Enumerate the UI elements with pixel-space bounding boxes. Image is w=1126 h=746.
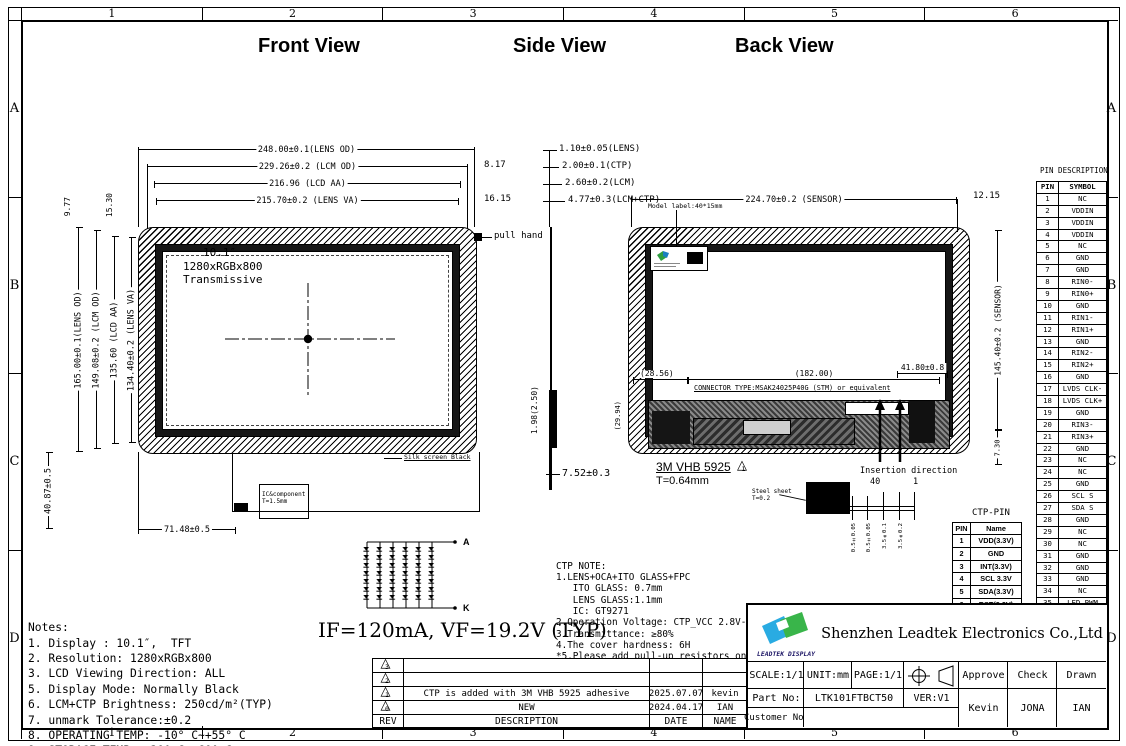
dim-front-lcm-od-width: 229.26±0.2 (LCM OD) [147, 166, 468, 167]
first-angle-projection-icon [906, 664, 958, 688]
ic-component-box: IC&component T=1.5mm [259, 484, 309, 519]
insertion-direction-label: Insertion direction [860, 467, 957, 476]
fpc-tick [899, 492, 900, 520]
drawing-sheet: 123456 123456 ABCD ABCD Front View Side … [0, 0, 1126, 746]
scale-cell: SCALE:1/1 [746, 661, 805, 689]
leader-line [549, 150, 550, 227]
dim-front-lens-od-height: 165.00±0.1(LENS OD) [78, 227, 79, 452]
side-view-title: Side View [513, 35, 606, 58]
led-cathode-label: K [463, 603, 470, 613]
check-name-cell: JONA [1007, 688, 1057, 727]
dim-side-lcm-ctp: 4.77±0.3(LCM+CTP) [568, 196, 660, 205]
fpc-dimension-labels: 0.5±0.050.5±0.053.5±0.13.5±0.2 [852, 522, 922, 556]
leadtek-logo-icon: LEADTEK DISPLAY [756, 609, 818, 661]
drawn-label-cell: Drawn [1056, 661, 1106, 689]
dim-pcb-height: (29.94) [615, 400, 622, 432]
pin-table-row: 28 GND [1037, 514, 1106, 526]
ruler-cell: 5 [744, 7, 925, 20]
dim-side-ctp: 2.00±0.1(CTP) [562, 162, 632, 171]
model-label-callout: Model label:40*15mm [648, 203, 722, 210]
pin-table-row: 25 GND [1037, 478, 1106, 490]
column-ruler-top: 123456 [21, 7, 1105, 20]
fpc-dim-label: 3.5±0.2 [899, 522, 905, 550]
revision-name [703, 673, 747, 686]
part-no-label-cell: Part No: [746, 688, 805, 708]
version-cell: VER:V1 [903, 688, 959, 708]
revision-date [650, 673, 703, 686]
model-label-box [650, 246, 708, 271]
ruler-cell: 6 [924, 7, 1105, 20]
insertion-pin-1: 1 [913, 478, 918, 487]
extension-line [467, 166, 468, 229]
note-line: 3. LCD Viewing Direction: ALL [28, 666, 368, 681]
fpc-dim-label: 0.5±0.05 [867, 522, 873, 553]
ctp-note-line: ITO GLASS: 0.7mm [556, 583, 774, 594]
pin-table-row: 6 GND [1037, 252, 1106, 264]
dim-front-lens-va-height: 134.40±0.2 (LENS VA) [131, 237, 132, 443]
crosshair-icon [220, 268, 400, 408]
pin-table-row: 20 RIN3- [1037, 419, 1106, 431]
dim-front-right-offset-1: 8.17 [484, 161, 506, 170]
ruler-cell: 2 [202, 7, 383, 20]
pin-table-row: 26 SCL S [1037, 490, 1106, 502]
pin-table-row: 33 GND [1037, 573, 1106, 585]
check-label-cell: Check [1007, 661, 1057, 689]
barcode-icon [687, 252, 703, 264]
ctp-table-row: 4 SCL 3.3V [953, 572, 1021, 585]
led-array-diagram [355, 532, 467, 616]
ruler-cell: B [8, 197, 21, 374]
pcb-left-block [652, 411, 690, 444]
pin-table-row: 10 GND [1037, 300, 1106, 312]
pin-table-row: 16 GND [1037, 371, 1106, 383]
insertion-arrows-icon [872, 398, 916, 464]
pin-table-row: 22 GND [1037, 443, 1106, 455]
fpc-tick [883, 492, 884, 520]
pin-table-header: PIN SYMBOL [1037, 182, 1106, 193]
ctp-note-line: IC: GT9271 [556, 606, 774, 617]
projection-symbol-cell [903, 661, 959, 689]
pin-table-body: 1 NC 2 VDDIN 3 VDDIN 4 VDDIN [1037, 193, 1106, 669]
dim-front-lens-va-width: 215.70±0.2 (LENS VA) [156, 200, 459, 201]
fpc-tail-line [850, 506, 914, 507]
dim-pcb-left-line [633, 379, 688, 380]
pin-table-row: 8 RIN0- [1037, 276, 1106, 288]
led-anode-label: A [463, 537, 470, 547]
pull-hand-label: pull hand [494, 232, 543, 241]
page-cell: PAGE:1/1 [851, 661, 904, 689]
dim-front-lens-od-width: 248.00±0.1(LENS OD) [138, 149, 475, 150]
pin-table-row: 23 NC [1037, 454, 1106, 466]
ruler-cell: A [8, 20, 21, 197]
fpc-tick [852, 496, 853, 520]
revision-mark-triangle: 2 [381, 673, 396, 686]
revision-description [404, 673, 650, 686]
revision-mark-triangle: 1 [381, 687, 396, 700]
ctp-table-row: 2 GND [953, 547, 1021, 560]
dim-side-lcm: 2.60±0.2(LCM) [565, 179, 635, 188]
insertion-pin-40: 40 [870, 478, 880, 487]
ctp-note-line: CTP NOTE: [556, 561, 774, 572]
dim-side-total: 7.52±0.3 [562, 469, 610, 480]
pin-table-row: 24 NC [1037, 466, 1106, 478]
ctp-table-row: 1 VDD(3.3V) [953, 534, 1021, 547]
ruler-cell: 4 [563, 7, 744, 20]
steel-sheet-block [806, 482, 850, 514]
pin-table-row: 15 RIN2+ [1037, 359, 1106, 371]
svg-text:LEADTEK DISPLAY: LEADTEK DISPLAY [757, 651, 816, 658]
dim-front-lcd-aa-height: 135.60 (LCD AA) [114, 236, 115, 444]
dim-back-bottom-gap: 7.30 [997, 430, 998, 465]
extension-line [147, 166, 148, 229]
pcb-center-label [743, 420, 791, 435]
approve-name-cell: Kevin [958, 688, 1008, 727]
ctp-pin-table-title: CTP-PIN [972, 509, 1010, 518]
side-profile-body [549, 390, 557, 448]
pin-table-row: 13 GND [1037, 336, 1106, 348]
pin-table-row: 12 RIN1+ [1037, 324, 1106, 336]
revision-table-body: 3 2 1 CTP is added with 3M VHB 5925 adhe… [373, 659, 747, 715]
adhesive-thickness: T=0.64mm [656, 476, 709, 488]
customer-no-label-cell: Customer No: [746, 707, 805, 727]
ruler-cell: 3 [382, 7, 563, 20]
ctp-pin-table: PIN Name 1 VDD(3.3V) 2 GND 3 INT(3.3V) [952, 522, 1022, 612]
leader-line [543, 150, 557, 151]
back-view-title: Back View [735, 35, 834, 58]
pull-hand-tab [474, 233, 482, 241]
front-fpc-connector [234, 503, 248, 511]
fpc-dim-label: 3.5±0.1 [883, 522, 889, 550]
model-label-text-lines [654, 263, 680, 264]
revision-row: 1 CTP is added with 3M VHB 5925 adhesive… [373, 687, 747, 701]
dim-side-lens: 1.10±0.05(LENS) [559, 145, 640, 154]
extension-line [957, 199, 958, 232]
ctp-table-row: 5 SDA(3.3V) [953, 585, 1021, 598]
side-profile-tail [549, 448, 552, 490]
dim-front-lcd-aa-width: 216.96 (LCD AA) [154, 183, 461, 184]
pin-table-row: 3 VDDIN [1037, 217, 1106, 229]
approve-label-cell: Approve [958, 661, 1008, 689]
leader-line [482, 237, 492, 238]
dim-front-top-offset-1: 9.77 [64, 196, 72, 217]
backlight-spec-text: IF=120mA, VF=19.2V (TYP) [318, 618, 607, 642]
revision-row: 0 NEW 2024.04.17 IAN [373, 701, 747, 715]
customer-no-value-cell [803, 707, 959, 727]
ic-component-label: IC&component [262, 491, 308, 498]
pin-table-row: 5 NC [1037, 240, 1106, 252]
fpc-dim-label: 0.5±0.05 [852, 522, 858, 553]
pin-table-row: 11 RIN1- [1037, 312, 1106, 324]
pin-table-row: 29 NC [1037, 526, 1106, 538]
ruler-cell: C [8, 373, 21, 550]
connector-type-label: CONNECTOR TYPE:MSAK24025P40G (STM) or eq… [694, 385, 890, 392]
dim-side-fpc: 1.98(2.50) [531, 385, 539, 435]
fpc-tick [867, 496, 868, 520]
pin-table-row: 19 GND [1037, 407, 1106, 419]
ctp-note-line: 1.LENS+OCA+ITO GLASS+FPC [556, 572, 774, 583]
dim-front-lcm-od-height: 149.08±0.2 (LCM OD) [96, 230, 97, 449]
note-line: 7. unmark Tolerance:±0.2 [28, 713, 368, 728]
extension-line [474, 149, 475, 227]
ctp-note-block: CTP NOTE:1.LENS+OCA+ITO GLASS+FPC ITO GL… [556, 527, 774, 674]
front-view-title: Front View [258, 35, 360, 58]
adhesive-label: 3M VHB 5925 [656, 461, 731, 474]
screen-size-label: 10.1″ [183, 246, 262, 260]
model-label-text-lines [654, 266, 676, 267]
pin-table-row: 32 GND [1037, 562, 1106, 574]
revision-date [650, 659, 703, 672]
pin-table-title: PIN DESCRIPTION [1040, 167, 1108, 175]
dim-front-right-offset-2: 16.15 [484, 195, 511, 204]
revision-table-header: REV DESCRIPTION DATE NAME [373, 715, 747, 727]
note-line: 6. LCM+CTP Brightness: 250cd/m²(TYP) [28, 697, 368, 712]
pin-table-row: 9 RIN0+ [1037, 288, 1106, 300]
leader-line [543, 167, 559, 168]
dim-pcb-width: (182.00) [688, 379, 940, 380]
revision-row: 3 [373, 659, 747, 673]
pin-description-table: PIN SYMBOL 1 NC 2 VDDIN 3 VDDIN [1036, 181, 1107, 670]
revision-date: 2024.04.17 [650, 701, 703, 714]
leader-line [546, 474, 560, 475]
fpc-tail-line [850, 510, 914, 511]
drawn-name-cell: IAN [1056, 688, 1106, 727]
pin-table-row: 2 VDDIN [1037, 205, 1106, 217]
leader-line [676, 210, 677, 246]
ctp-table-row: 3 INT(3.3V) [953, 560, 1021, 573]
dim-connector-offset-line: 41.80±0.8 [897, 373, 948, 374]
pin-table-row: 14 RIN2- [1037, 347, 1106, 359]
revision-date: 2025.07.07 [650, 687, 703, 700]
revision-table: 3 2 1 CTP is added with 3M VHB 5925 adhe… [372, 658, 748, 728]
leadtek-mini-logo-icon [655, 249, 671, 263]
dim-pcb-left: (28.56) [640, 370, 674, 378]
leader-line [543, 201, 565, 202]
part-no-value-cell: LTK101FTBCT50 [803, 688, 904, 708]
ctp-table-header: PIN Name [953, 523, 1021, 534]
pin-table-row: 7 GND [1037, 264, 1106, 276]
ic-component-thickness: T=1.5mm [262, 498, 308, 505]
pin-table-row: 17 LVDS CLK- [1037, 383, 1106, 395]
dim-back-right-offset: 12.15 [973, 192, 1000, 201]
note-line: 8. OPERATING TEMP: -10° C~+55° C [28, 728, 368, 743]
revision-name: kevin [703, 687, 747, 700]
pin-table-row: 34 NC [1037, 585, 1106, 597]
dim-front-fpc-height: 40.87±0.5 [48, 452, 49, 529]
unit-cell: UNIT:mm [803, 661, 852, 689]
revision-name: IAN [703, 701, 747, 714]
revision-description [404, 659, 650, 672]
revision-mark-triangle: 0 [381, 701, 396, 714]
fpc-tick [914, 492, 915, 520]
pin-table-row: 18 LVDS CLK+ [1037, 395, 1106, 407]
pin-table-row: 31 GND [1037, 550, 1106, 562]
pin-table-row: 27 SDA S [1037, 502, 1106, 514]
pin-table-row: 30 NC [1037, 538, 1106, 550]
leader-line [543, 184, 562, 185]
row-ruler-left: ABCD [8, 20, 21, 726]
ctp-table-body: 1 VDD(3.3V) 2 GND 3 INT(3.3V) 4 SCL 3.3V [953, 534, 1021, 611]
note-line: 5. Display Mode: Normally Black [28, 682, 368, 697]
revision-mark-triangle: 1 [737, 461, 752, 474]
dim-front-fpc-width: 71.48±0.5 [138, 529, 236, 530]
dim-front-top-offset-2: 15.30 [106, 192, 114, 218]
company-name: Shenzhen Leadtek Electronics Co.,Ltd [822, 605, 1102, 662]
pin-table-row: 21 RIN3+ [1037, 431, 1106, 443]
dim-back-sensor-height: 145.40±0.2 (SENSOR) [997, 230, 998, 430]
pin-table-row: 4 VDDIN [1037, 229, 1106, 241]
revision-description: CTP is added with 3M VHB 5925 adhesive [404, 687, 650, 700]
pin-table-row: 1 NC [1037, 193, 1106, 205]
revision-row: 2 [373, 673, 747, 687]
ctp-note-line: LENS GLASS:1.1mm [556, 595, 774, 606]
note-line: 2. Resolution: 1280xRGBx800 [28, 651, 368, 666]
revision-mark-triangle: 3 [381, 659, 396, 672]
dim-back-sensor-width: 224.70±0.2 (SENSOR) [631, 199, 957, 200]
revision-description: NEW [404, 701, 650, 714]
extension-line [138, 452, 139, 530]
extension-line [138, 149, 139, 227]
notes-block: Notes:1. Display : 10.1″, TFT2. Resoluti… [28, 574, 368, 746]
ruler-cell: D [8, 550, 21, 727]
revision-name [703, 659, 747, 672]
ruler-cell: 1 [21, 7, 202, 20]
